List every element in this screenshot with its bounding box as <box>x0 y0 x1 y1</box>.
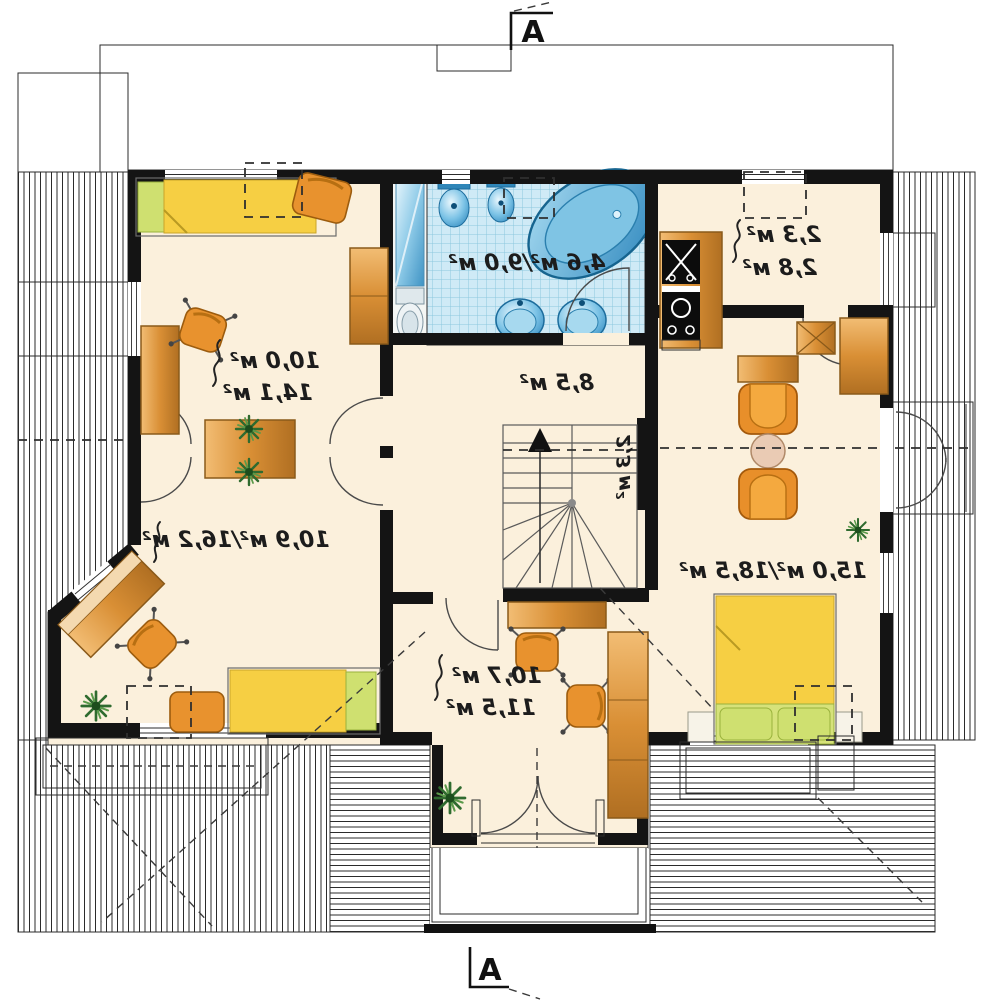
wardrobe <box>840 318 888 394</box>
sideboard <box>738 356 798 382</box>
window-right-top <box>880 233 893 305</box>
room-label-bathroom: 4,6 м²/9,0 м² <box>448 251 606 276</box>
french-door-opening-right <box>880 408 893 512</box>
door-opening-bottom-left <box>380 458 393 510</box>
nightstand <box>836 712 862 742</box>
bed-pillow <box>138 182 164 232</box>
room-label-bedroom-2: 14,1 м² <box>223 381 313 406</box>
tall-wardrobe <box>608 632 648 818</box>
desk <box>508 602 606 628</box>
wc-tank <box>396 288 424 304</box>
ottoman <box>170 692 224 732</box>
room-label-closet-2: 2,8 м² <box>743 256 818 281</box>
room-label-bottom-center-1: 10,7 м² <box>452 664 542 689</box>
section-marker-bottom: A <box>470 947 540 999</box>
room-label-bedroom-1: 10,0 м² <box>230 349 320 374</box>
room-label-closet-1: 2,3 м² <box>747 223 822 248</box>
dormer-notch <box>437 45 511 71</box>
bed-pillow <box>778 708 830 740</box>
bed <box>230 670 346 732</box>
room-label-hall: 8,5 м² <box>520 371 595 396</box>
nightstand <box>688 712 714 742</box>
round-table <box>751 434 785 468</box>
plant-icon <box>847 519 869 541</box>
stove-icon <box>662 292 700 340</box>
armchair <box>739 469 797 519</box>
balcony-bottom-center <box>424 848 656 933</box>
plant-icon <box>236 459 262 485</box>
door-opening-bedroom <box>380 396 393 446</box>
room-label-bottom-left: 10,9 м²/16,2 м² <box>142 528 330 553</box>
section-marker-top: A <box>511 2 553 50</box>
plant-icon <box>435 783 465 813</box>
armchair <box>739 384 797 434</box>
bed-pillow <box>720 708 772 740</box>
double-bed <box>716 596 834 704</box>
room-label-living: 15,0 м²/18,5 м² <box>679 559 867 584</box>
room-label-stairs: 2,3 м² <box>613 435 635 500</box>
floor-plan-page: 10,0 м² 14,1 м² 4,6 м²/9,0 м² 8,5 м² 2,3… <box>0 0 993 1000</box>
plant-icon <box>82 692 111 721</box>
office-chair <box>560 677 611 734</box>
window-top-bath <box>442 170 470 184</box>
window-right-bottom <box>880 553 893 613</box>
appliance-icon <box>662 240 700 284</box>
door-opening-bath <box>563 333 629 345</box>
window-left-bedroom <box>128 282 141 356</box>
plant-icon <box>236 416 262 442</box>
room-label-bottom-center-2: 11,5 м² <box>446 696 536 721</box>
section-letter-top: A <box>521 15 545 50</box>
floor-plan-drawing: 10,0 м² 14,1 м² 4,6 м²/9,0 м² 8,5 м² 2,3… <box>0 0 993 1000</box>
section-letter-bottom: A <box>478 953 502 988</box>
balcony-edge <box>424 924 656 933</box>
cabinet-x <box>797 322 835 354</box>
